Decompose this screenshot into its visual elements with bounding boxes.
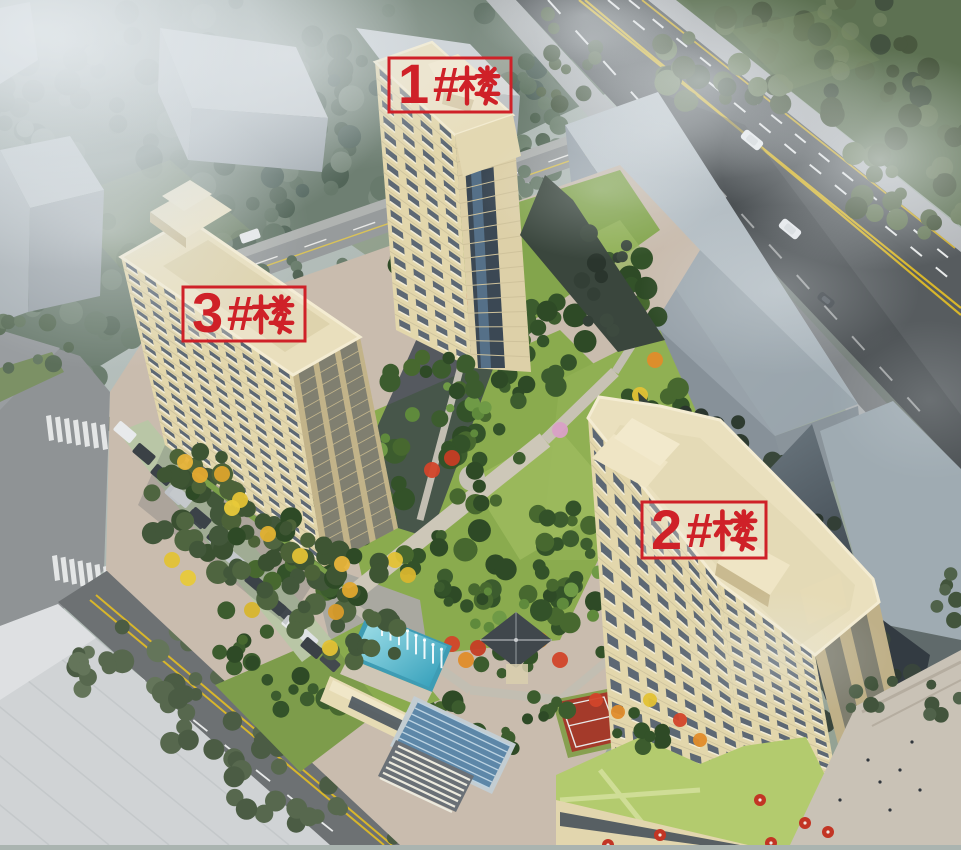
svg-text:1: 1 (398, 52, 429, 115)
svg-text:#: # (433, 59, 460, 112)
svg-text:#: # (686, 505, 713, 558)
svg-text:3: 3 (192, 281, 223, 344)
svg-text:#: # (227, 288, 254, 341)
svg-text:2: 2 (651, 498, 682, 561)
